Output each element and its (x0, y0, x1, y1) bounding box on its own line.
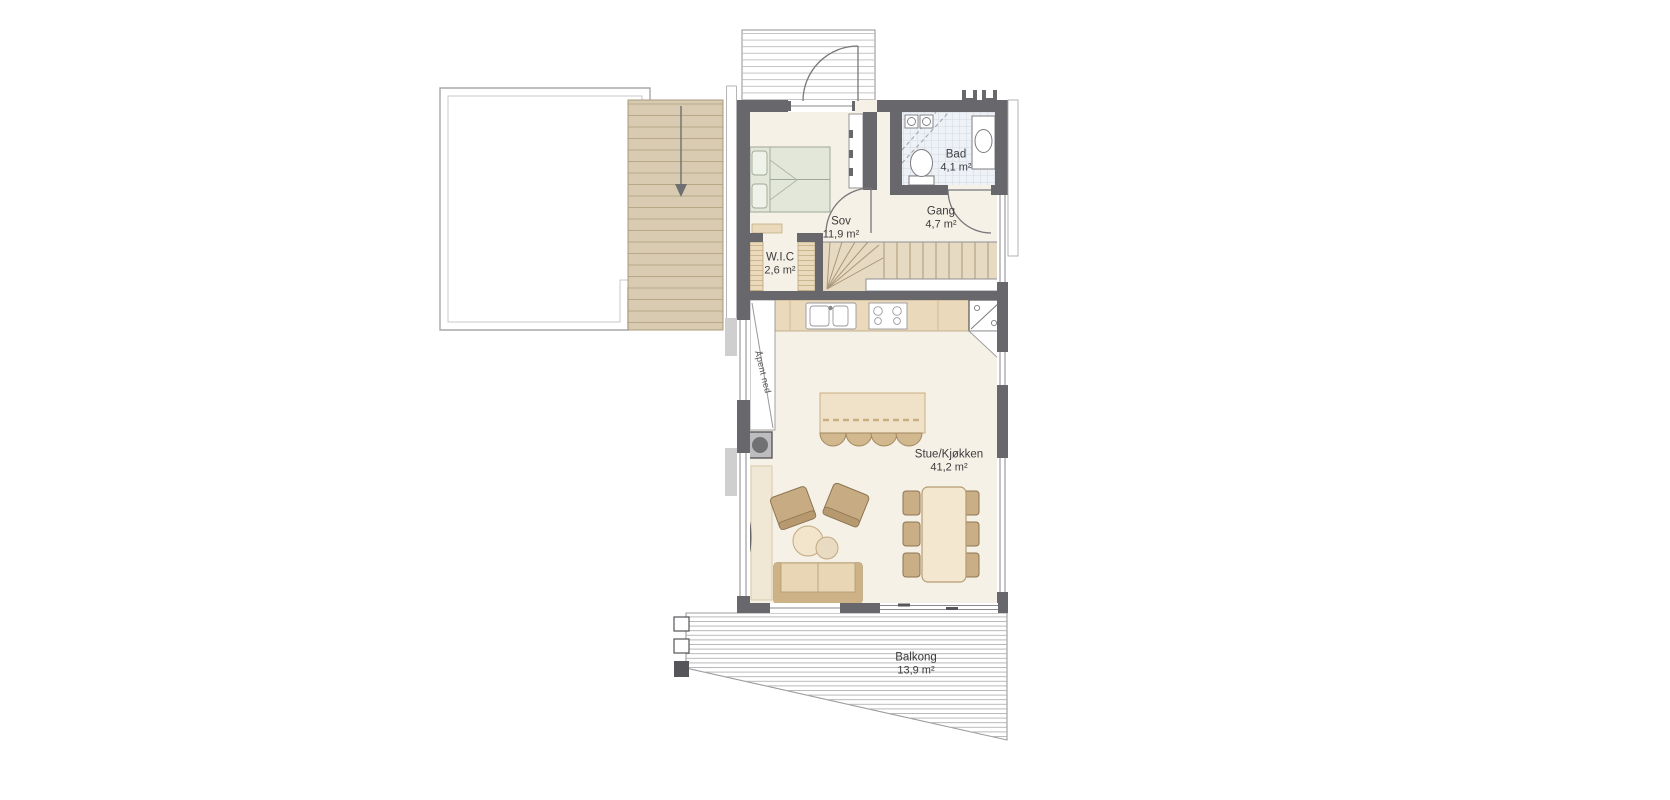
roof-outline (440, 88, 650, 330)
sofa (774, 563, 862, 603)
door-handle (946, 607, 958, 610)
kitchen-island (820, 393, 925, 446)
dining-chair (903, 553, 920, 577)
room-area: 13,9 m² (895, 664, 937, 677)
bathroom-sink (972, 116, 995, 169)
sideboard (751, 466, 772, 600)
stair-handrail (866, 279, 999, 291)
floor-plan: Sov 11,9 m² Bad 4,1 m² Gang 4,7 m² W.I.C… (0, 0, 1670, 800)
room-area: 4,7 m² (925, 218, 956, 231)
room-area: 11,9 m² (823, 228, 859, 241)
dining-chair (903, 491, 920, 515)
wall-pier (997, 282, 1008, 352)
balcony-post (674, 661, 689, 677)
dining-set (903, 487, 979, 582)
room-name: W.I.C (764, 252, 795, 265)
kitchen-sink (806, 303, 856, 329)
room-label-gang: Gang 4,7 m² (925, 206, 956, 231)
wall-pier (997, 385, 1008, 458)
roof-edge-strip (727, 86, 737, 330)
dining-table (922, 487, 966, 582)
cooktop (869, 303, 907, 329)
room-area: 2,6 m² (764, 264, 795, 277)
room-name: Bad (940, 149, 971, 162)
room-label-stue: Stue/Kjøkken 41,2 m² (915, 449, 983, 474)
room-label-sov: Sov 11,9 m² (823, 216, 859, 241)
pillow (752, 151, 767, 175)
bed (750, 147, 830, 212)
balcony-deck (674, 613, 1007, 740)
bedroom-bench (752, 224, 782, 233)
dining-chair (903, 522, 920, 546)
pillow (752, 184, 767, 208)
floor-plan-drawing (0, 0, 1670, 800)
balcony-post (674, 639, 689, 653)
wall-pier (997, 592, 1008, 613)
room-label-bad: Bad 4,1 m² (940, 149, 971, 174)
toilet (909, 150, 934, 186)
outdoor-stair (628, 100, 723, 330)
wardrobe (849, 114, 863, 188)
room-area: 41,2 m² (915, 461, 983, 474)
room-label-wic: W.I.C 2,6 m² (764, 252, 795, 277)
room-name: Stue/Kjøkken (915, 449, 983, 462)
room-name: Gang (925, 206, 956, 219)
wood-stove (748, 432, 772, 458)
room-name: Sov (823, 216, 859, 229)
entry-deck (742, 30, 875, 103)
balcony-post (674, 617, 689, 631)
room-name: Balkong (895, 652, 937, 665)
room-area: 4,1 m² (940, 161, 971, 174)
door-handle (898, 604, 910, 607)
room-label-balkong: Balkong 13,9 m² (895, 652, 937, 677)
interior-stair (823, 242, 999, 291)
